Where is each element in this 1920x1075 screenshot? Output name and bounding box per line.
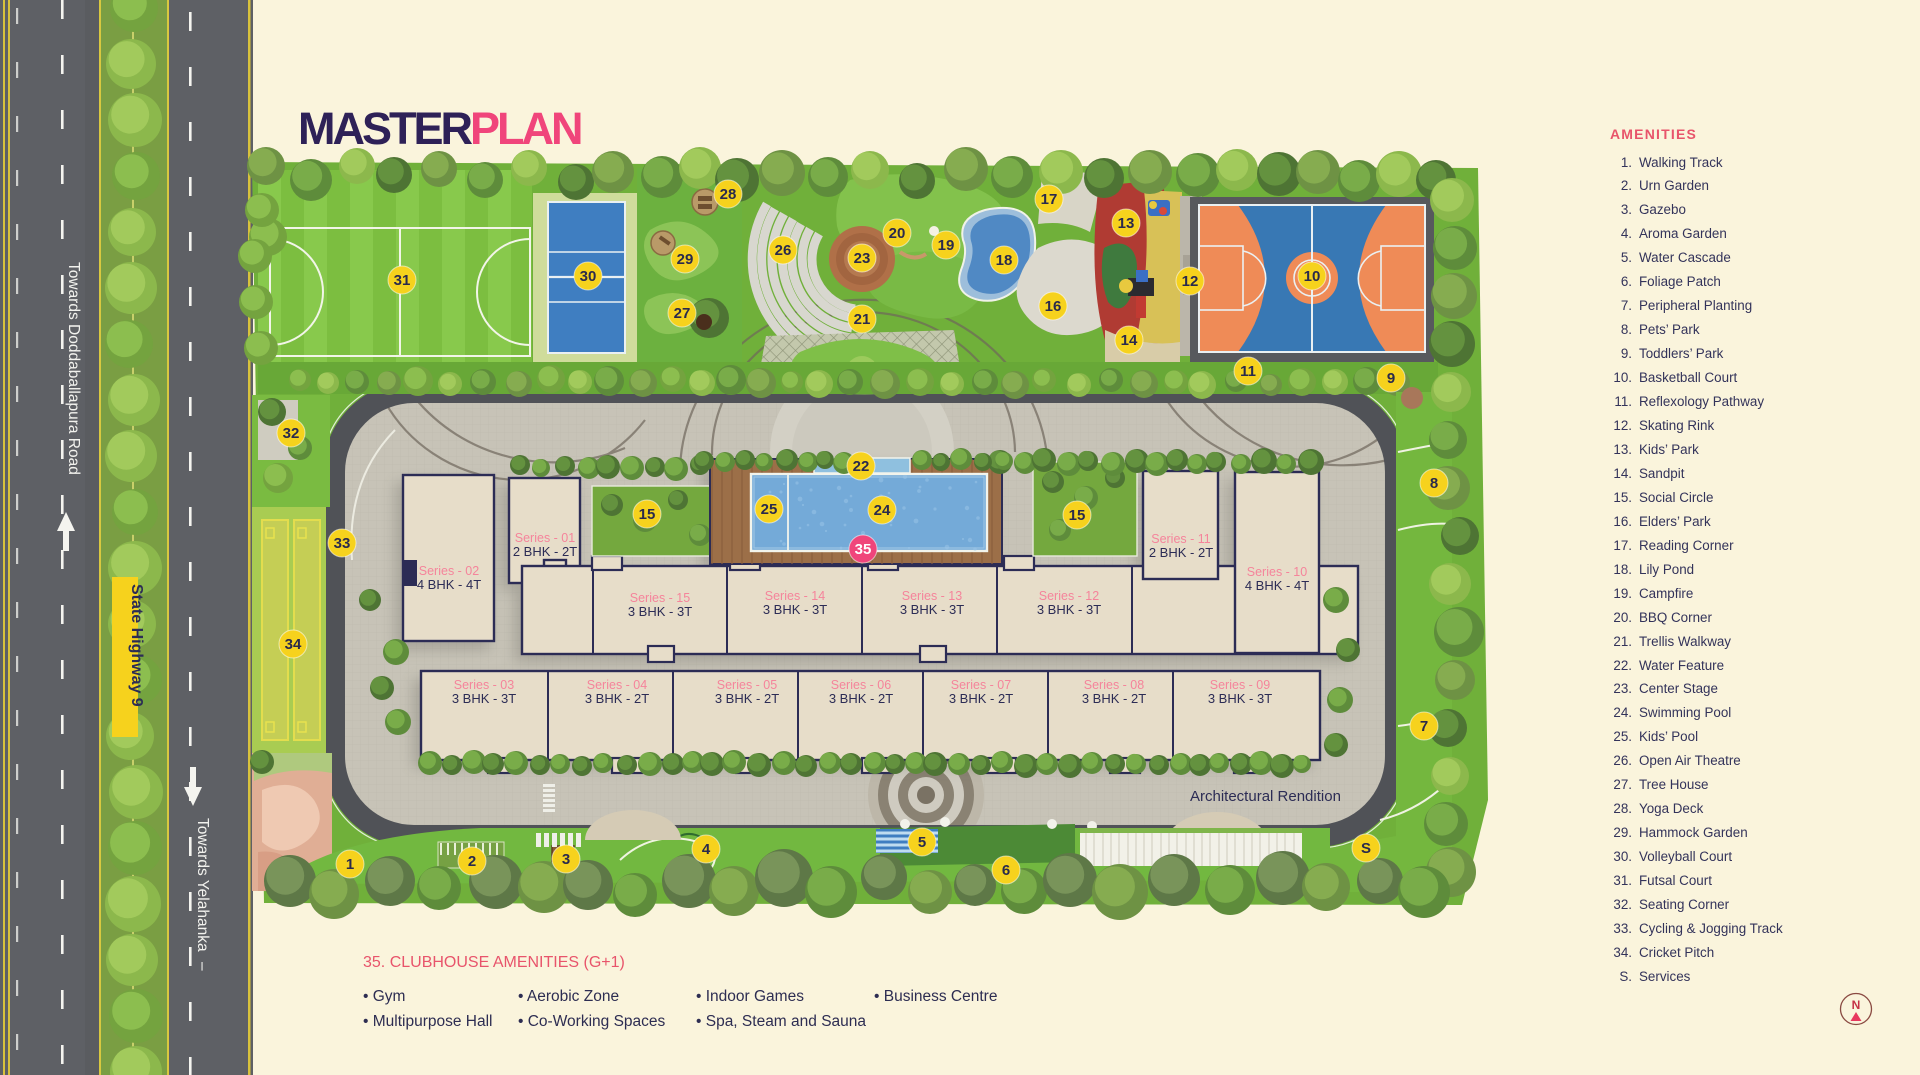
svg-text:35: 35 — [855, 541, 872, 558]
svg-text:24: 24 — [874, 502, 891, 519]
svg-text:7: 7 — [1420, 718, 1428, 735]
svg-text:2 BHK - 2T: 2 BHK - 2T — [513, 544, 577, 559]
svg-text:Towards Yelahanka: Towards Yelahanka — [194, 818, 211, 952]
svg-text:1: 1 — [346, 856, 354, 873]
svg-text:Series - 05: Series - 05 — [717, 678, 777, 692]
svg-text:27: 27 — [674, 305, 691, 322]
svg-text:Series - 07: Series - 07 — [951, 678, 1011, 692]
svg-text:3 BHK - 3T: 3 BHK - 3T — [1208, 691, 1272, 706]
svg-text:3 BHK - 2T: 3 BHK - 2T — [715, 691, 779, 706]
svg-text:Towards Doddaballapura Road: Towards Doddaballapura Road — [65, 262, 82, 475]
svg-text:3 BHK - 3T: 3 BHK - 3T — [763, 602, 827, 617]
svg-text:30: 30 — [580, 268, 597, 285]
svg-text:3 BHK - 2T: 3 BHK - 2T — [829, 691, 893, 706]
svg-text:State Highway 9: State Highway 9 — [128, 584, 145, 707]
svg-text:31: 31 — [394, 272, 411, 289]
svg-text:12: 12 — [1182, 273, 1199, 290]
svg-text:9: 9 — [1387, 370, 1395, 387]
svg-text:29: 29 — [677, 251, 694, 268]
svg-text:Series - 11: Series - 11 — [1151, 532, 1211, 546]
svg-text:N: N — [1852, 998, 1861, 1012]
svg-text:–: – — [194, 962, 211, 971]
svg-text:Series - 09: Series - 09 — [1210, 678, 1270, 692]
svg-text:2 BHK - 2T: 2 BHK - 2T — [1149, 545, 1213, 560]
svg-text:3 BHK - 3T: 3 BHK - 3T — [1037, 602, 1101, 617]
svg-text:3 BHK - 3T: 3 BHK - 3T — [452, 691, 516, 706]
svg-text:16: 16 — [1045, 298, 1062, 315]
svg-text:21: 21 — [854, 311, 871, 328]
svg-text:3 BHK - 2T: 3 BHK - 2T — [585, 691, 649, 706]
svg-text:Series - 15: Series - 15 — [630, 591, 690, 605]
svg-text:Architectural Rendition: Architectural Rendition — [1190, 788, 1341, 805]
svg-text:33: 33 — [334, 535, 351, 552]
svg-text:6: 6 — [1002, 862, 1010, 879]
svg-text:3 BHK - 2T: 3 BHK - 2T — [949, 691, 1013, 706]
svg-text:10: 10 — [1304, 268, 1321, 285]
svg-text:Series - 04: Series - 04 — [587, 678, 647, 692]
svg-text:4 BHK - 4T: 4 BHK - 4T — [417, 577, 481, 592]
svg-text:Series - 06: Series - 06 — [831, 678, 891, 692]
svg-text:3: 3 — [562, 851, 570, 868]
svg-text:2: 2 — [468, 853, 476, 870]
svg-text:20: 20 — [889, 225, 906, 242]
svg-text:Series - 03: Series - 03 — [454, 678, 514, 692]
svg-text:23: 23 — [854, 250, 871, 267]
svg-text:Series - 08: Series - 08 — [1084, 678, 1144, 692]
svg-text:Series - 14: Series - 14 — [765, 589, 825, 603]
svg-text:3 BHK - 3T: 3 BHK - 3T — [900, 602, 964, 617]
svg-text:14: 14 — [1121, 332, 1138, 349]
svg-text:11: 11 — [1240, 363, 1256, 380]
svg-text:S: S — [1361, 840, 1371, 857]
svg-text:3 BHK - 2T: 3 BHK - 2T — [1082, 691, 1146, 706]
svg-text:22: 22 — [853, 458, 870, 475]
svg-text:5: 5 — [918, 834, 926, 851]
svg-text:34: 34 — [285, 636, 302, 653]
svg-text:13: 13 — [1118, 215, 1135, 232]
svg-text:8: 8 — [1430, 475, 1438, 492]
svg-text:Series - 01: Series - 01 — [515, 531, 575, 545]
svg-text:4 BHK - 4T: 4 BHK - 4T — [1245, 578, 1309, 593]
svg-text:Series - 02: Series - 02 — [419, 564, 479, 578]
svg-text:4: 4 — [702, 841, 711, 858]
svg-text:Series - 12: Series - 12 — [1039, 589, 1099, 603]
svg-text:28: 28 — [720, 186, 737, 203]
svg-text:32: 32 — [283, 425, 300, 442]
svg-text:Series - 13: Series - 13 — [902, 589, 962, 603]
svg-text:19: 19 — [938, 237, 955, 254]
svg-text:3 BHK - 3T: 3 BHK - 3T — [628, 604, 692, 619]
svg-text:Series - 10: Series - 10 — [1247, 565, 1307, 579]
svg-text:15: 15 — [1069, 507, 1086, 524]
svg-text:18: 18 — [996, 252, 1013, 269]
svg-text:26: 26 — [775, 242, 792, 259]
svg-text:15: 15 — [639, 506, 656, 523]
svg-text:25: 25 — [761, 501, 778, 518]
svg-text:17: 17 — [1041, 191, 1058, 208]
